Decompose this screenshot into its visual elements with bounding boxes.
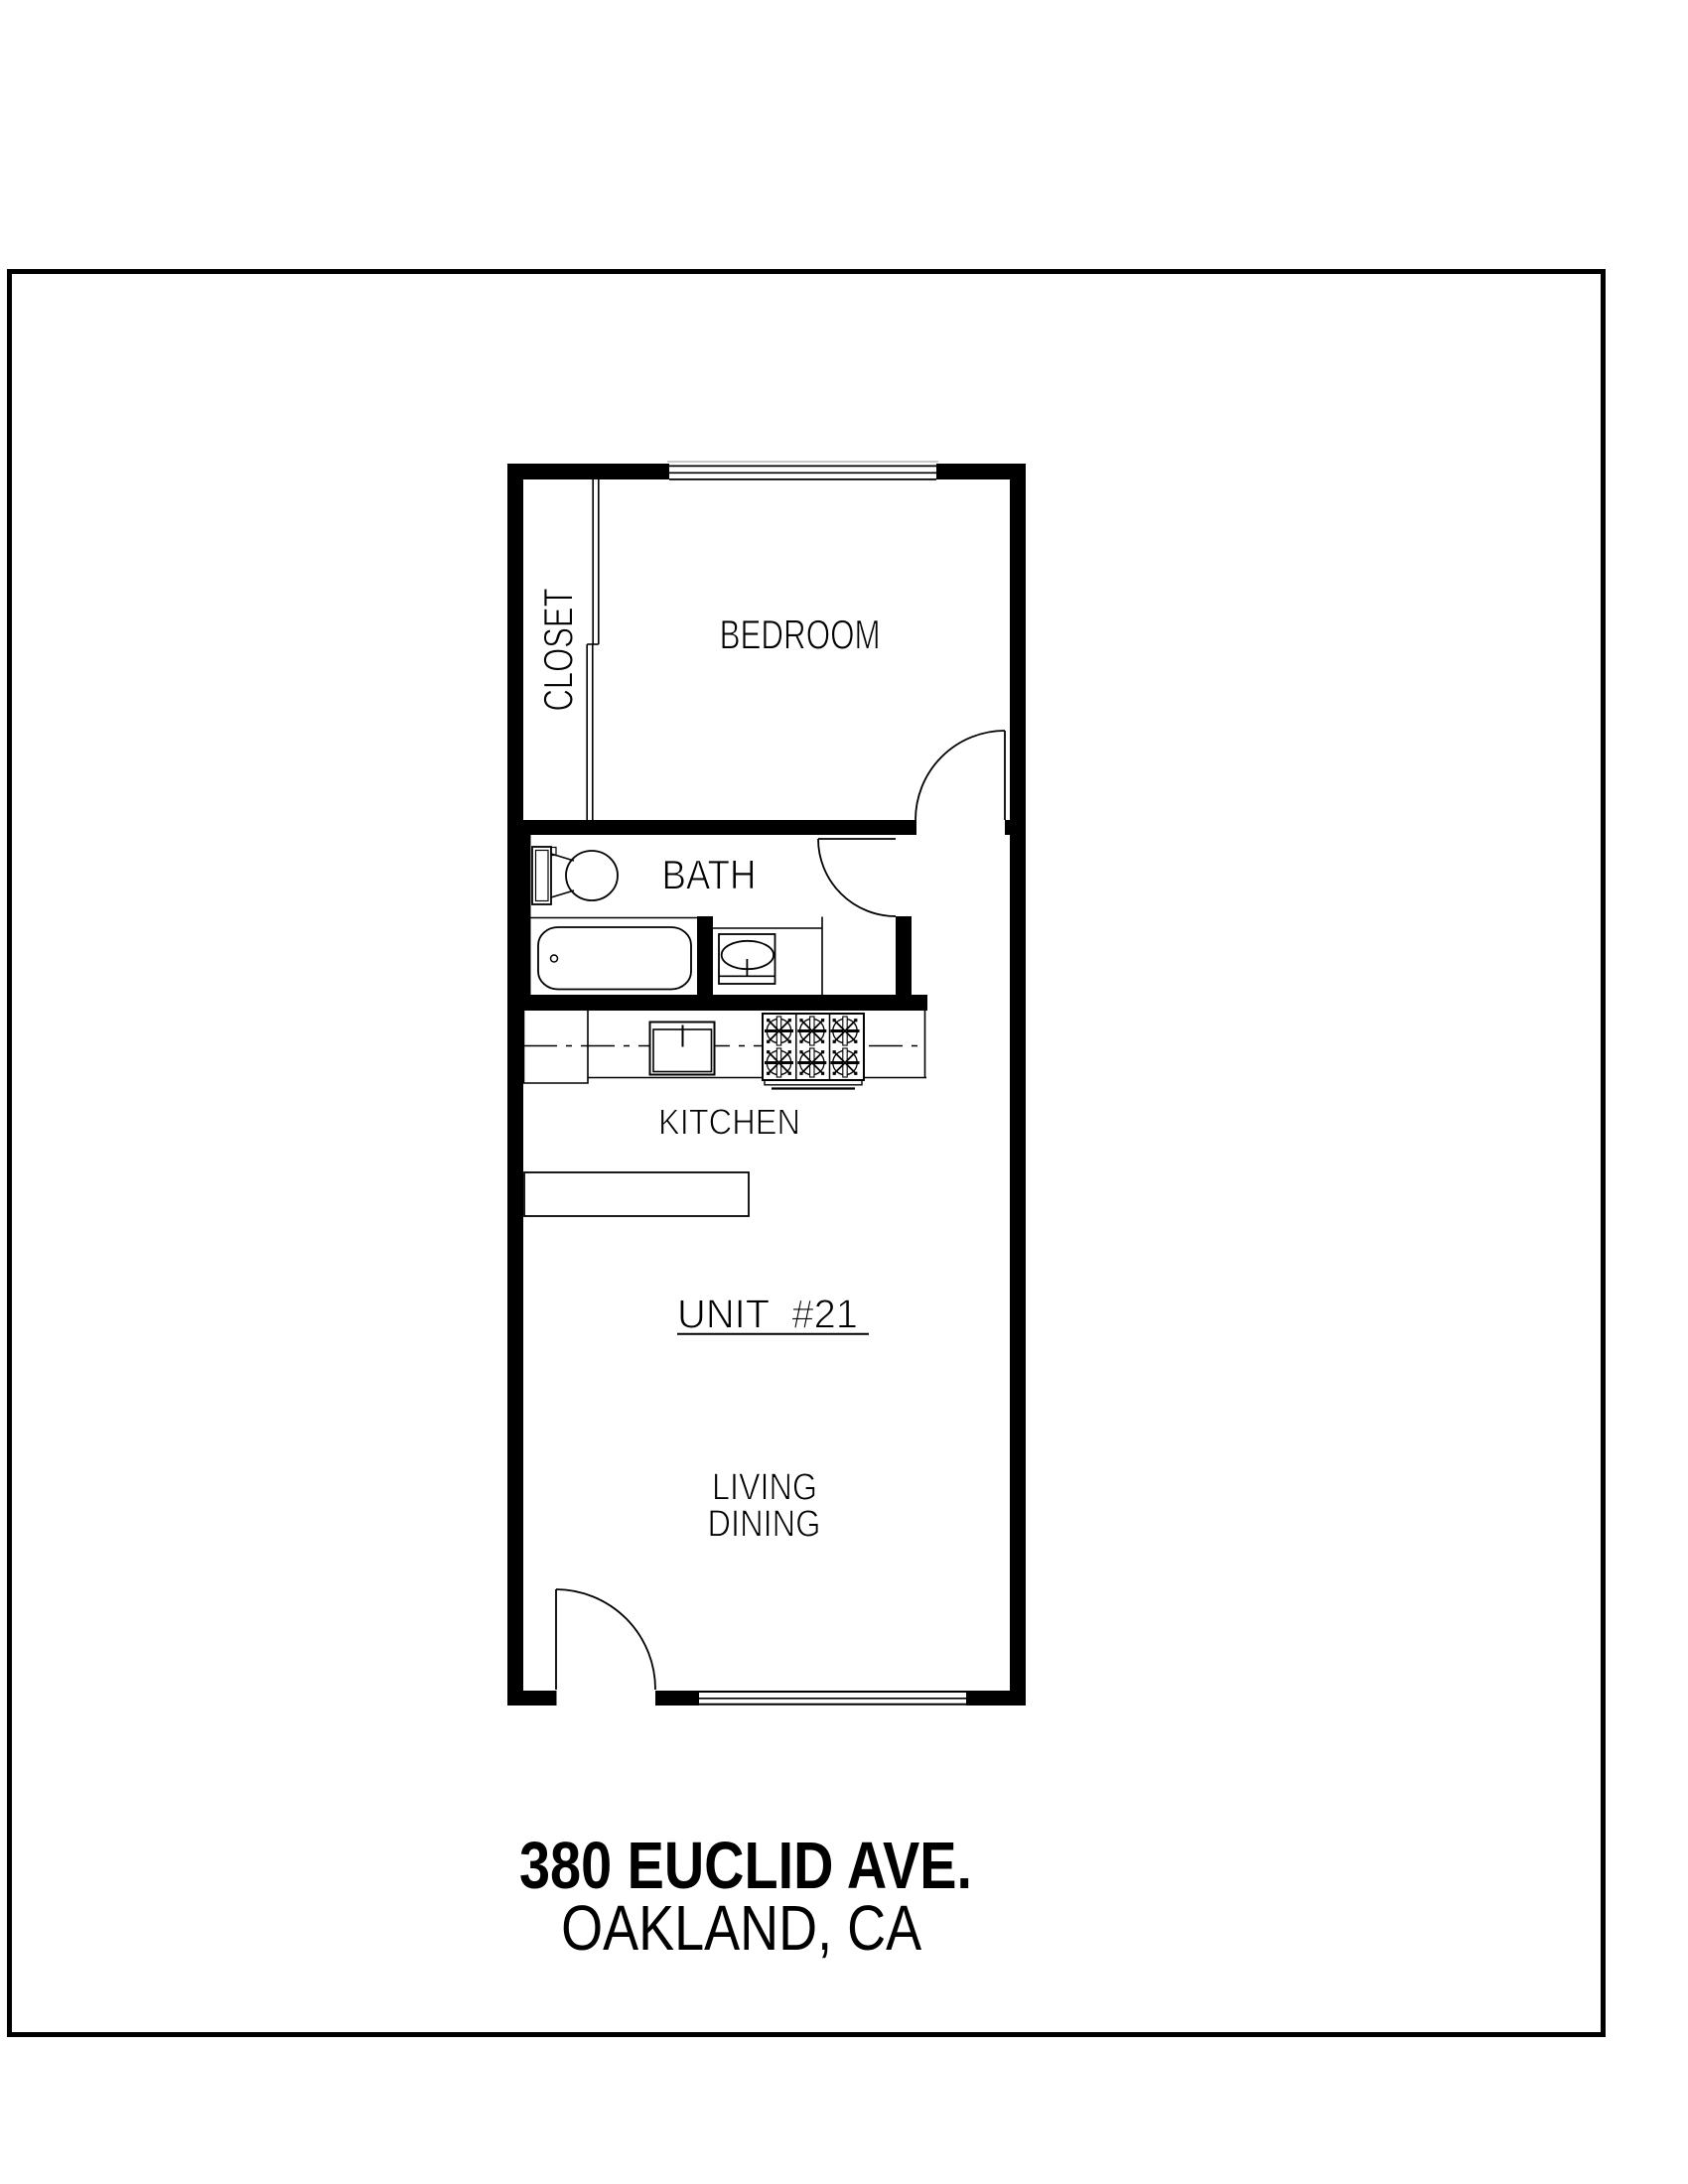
svg-text:CLOSET: CLOSET	[535, 589, 582, 712]
svg-text:OAKLAND, CA: OAKLAND, CA	[561, 1892, 921, 1964]
svg-text:LIVING: LIVING	[712, 1467, 817, 1509]
svg-text:DINING: DINING	[708, 1504, 821, 1546]
svg-text:BATH: BATH	[662, 852, 757, 898]
svg-text:KITCHEN: KITCHEN	[658, 1102, 800, 1143]
svg-text:UNIT #21: UNIT #21	[677, 1292, 858, 1337]
svg-text:BEDROOM: BEDROOM	[720, 612, 881, 658]
